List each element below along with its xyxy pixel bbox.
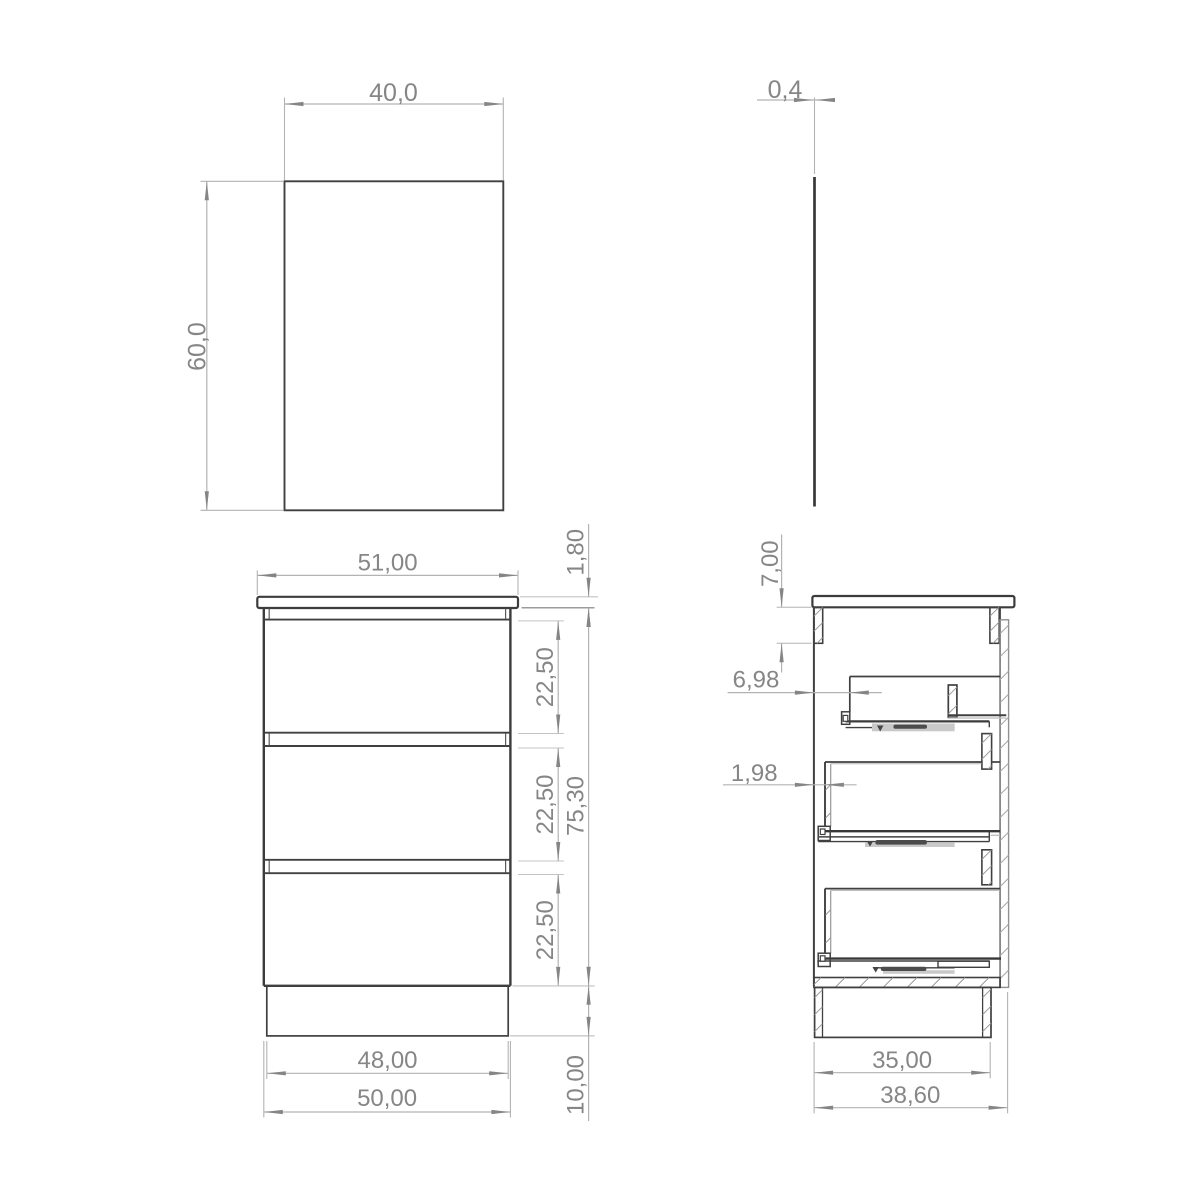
svg-text:75,30: 75,30 <box>563 776 590 836</box>
svg-text:22,50: 22,50 <box>532 900 559 960</box>
svg-text:7,00: 7,00 <box>757 540 784 587</box>
svg-text:0,4: 0,4 <box>768 76 803 104</box>
svg-text:50,00: 50,00 <box>357 1085 417 1112</box>
svg-text:22,50: 22,50 <box>532 774 559 834</box>
svg-text:48,00: 48,00 <box>357 1047 417 1074</box>
svg-text:10,00: 10,00 <box>563 1055 590 1115</box>
svg-text:6,98: 6,98 <box>733 666 780 693</box>
svg-text:40,0: 40,0 <box>369 79 418 107</box>
svg-text:51,00: 51,00 <box>358 549 418 576</box>
svg-text:1,98: 1,98 <box>731 760 778 787</box>
svg-text:60,0: 60,0 <box>184 322 212 371</box>
svg-text:22,50: 22,50 <box>532 647 559 707</box>
svg-text:1,80: 1,80 <box>562 529 589 576</box>
svg-text:35,00: 35,00 <box>872 1047 932 1074</box>
svg-text:38,60: 38,60 <box>880 1082 940 1109</box>
